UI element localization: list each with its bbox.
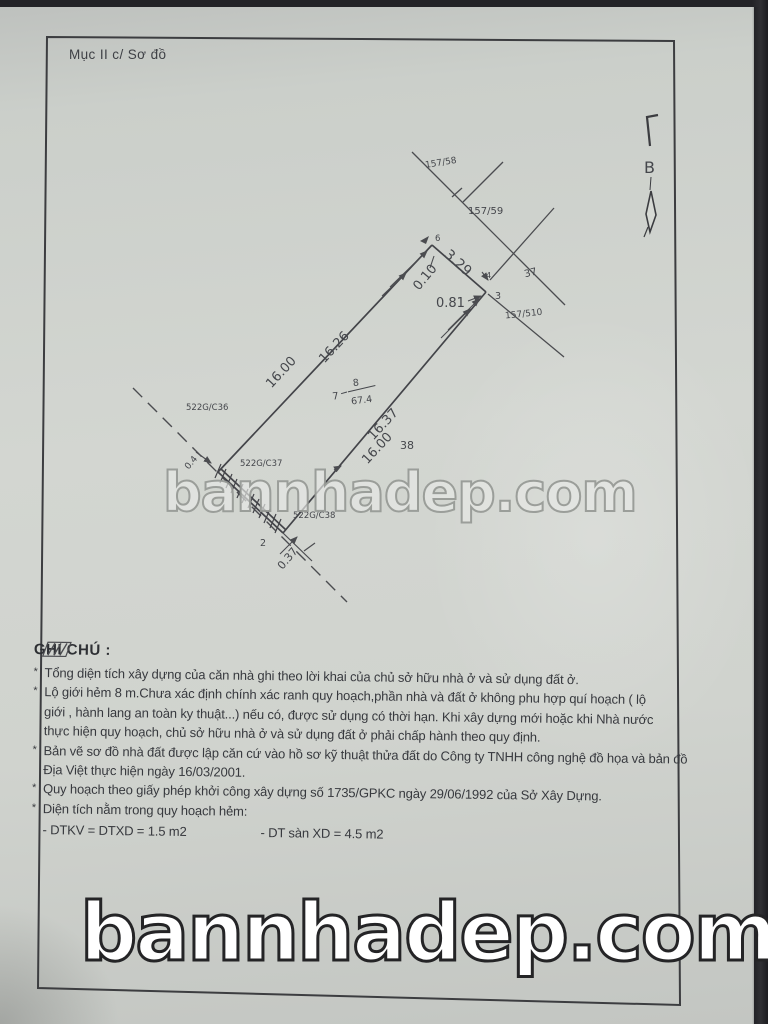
dim-010: 0.10 <box>410 262 440 294</box>
point-4: 4 <box>486 271 491 280</box>
parcel-label-157-58: 157/58 <box>425 156 458 171</box>
lot-area-label: 7 8 67.4 <box>330 376 377 410</box>
dim-top-edge: 3.29 <box>441 247 475 280</box>
parcel-label-157-59: 157/59 <box>468 206 503 217</box>
dim-left-outer: 16.00 <box>263 354 299 391</box>
corner-tick <box>420 236 429 244</box>
watermark-bottom: bannhadep.com <box>80 886 768 979</box>
neighbour-boundaries <box>412 152 565 357</box>
point-2: 2 <box>260 538 266 549</box>
lot-number: 7 <box>332 391 340 403</box>
parcel-label-37: 37 <box>523 266 538 280</box>
bullet-mark: * <box>32 799 43 819</box>
house-number: 8 <box>352 377 359 389</box>
dtkv-value: - DTKV = DTXD = 1.5 m2 <box>42 820 186 841</box>
watermark-middle: bannhadep.com <box>163 461 637 524</box>
north-label: B <box>644 158 655 177</box>
dt-san-value: - DT sàn XD = 4.5 m2 <box>260 823 383 844</box>
parcel-label-38: 38 <box>400 439 414 452</box>
scanned-document-photo: Mục II c/ Sơ đồ <box>0 0 768 1024</box>
bullet-mark: * <box>32 741 43 761</box>
point-6: 6 <box>435 234 440 244</box>
parcel-label-157-510: 157/510 <box>505 308 544 322</box>
point-3: 3 <box>495 291 501 302</box>
bullet-mark: * <box>32 779 43 799</box>
bullet-mark: * <box>33 682 44 702</box>
dim-081: 0.81 <box>436 296 465 311</box>
hatch-swatch <box>42 641 72 657</box>
area-value: 67.4 <box>351 394 373 407</box>
dim-left-inner: 16.26 <box>316 329 352 366</box>
parcel-label-522g-c36: 522G/C36 <box>186 403 228 413</box>
dim-037: 0.37 <box>275 545 301 572</box>
notes-section: GHI CHÚ : *Tổng diện tích xây dựng của c… <box>31 641 674 848</box>
bullet-mark: * <box>33 663 44 683</box>
